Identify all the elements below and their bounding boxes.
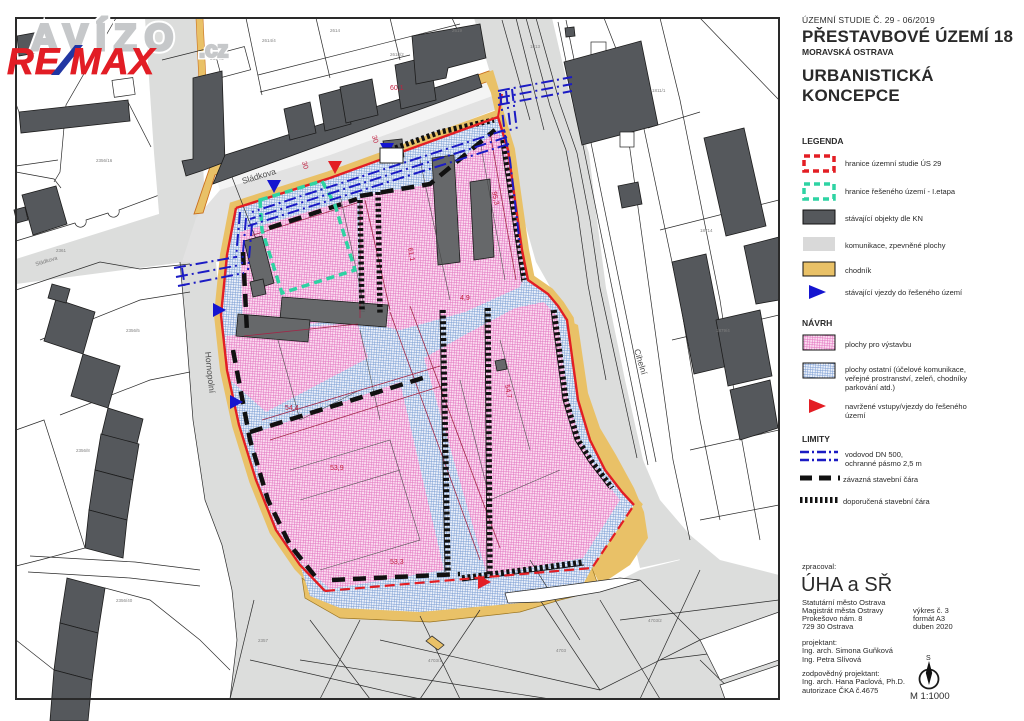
svg-text:.cz: .cz bbox=[199, 37, 228, 62]
svg-text:S: S bbox=[926, 655, 931, 662]
svg-text:4703: 4703 bbox=[556, 648, 567, 653]
svg-text:2618/2: 2618/2 bbox=[390, 52, 404, 57]
svg-text:2614: 2614 bbox=[330, 28, 341, 33]
svg-text:2619: 2619 bbox=[452, 28, 463, 33]
svg-text:2361: 2361 bbox=[56, 248, 67, 253]
svg-text:53,9: 53,9 bbox=[330, 465, 344, 472]
svg-text:18714: 18714 bbox=[700, 228, 713, 233]
svg-text:53,3: 53,3 bbox=[390, 559, 404, 566]
svg-text:4703/1: 4703/1 bbox=[428, 658, 442, 663]
svg-text:2356/16: 2356/16 bbox=[96, 158, 113, 163]
svg-text:2356/40: 2356/40 bbox=[116, 598, 133, 603]
svg-text:2356/8: 2356/8 bbox=[76, 448, 90, 453]
svg-text:1811/1: 1811/1 bbox=[652, 88, 666, 93]
svg-text:4703/2: 4703/2 bbox=[648, 618, 662, 623]
svg-text:2614/4: 2614/4 bbox=[262, 38, 276, 43]
svg-text:MAX: MAX bbox=[70, 41, 157, 82]
svg-text:2356/5: 2356/5 bbox=[126, 328, 140, 333]
svg-text:1813: 1813 bbox=[530, 44, 541, 49]
svg-text:2357: 2357 bbox=[258, 638, 269, 643]
svg-text:4,9: 4,9 bbox=[460, 295, 470, 302]
svg-text:54,4: 54,4 bbox=[285, 405, 299, 412]
svg-text:RE: RE bbox=[7, 41, 61, 82]
svg-text:60,1: 60,1 bbox=[390, 85, 404, 92]
svg-text:1879/4: 1879/4 bbox=[716, 328, 730, 333]
